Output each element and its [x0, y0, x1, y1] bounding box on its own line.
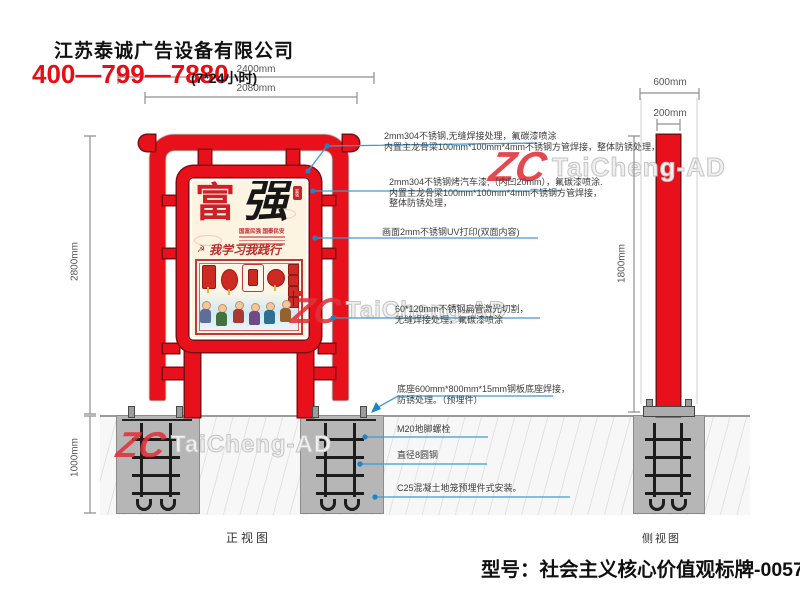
- frame-cap-left-end: [139, 135, 155, 151]
- dim-label-200: 200mm: [650, 108, 690, 119]
- banner-icon: [288, 264, 299, 275]
- rebar-cage: [645, 423, 691, 507]
- crowd-figure: [249, 303, 261, 329]
- leader-arrowhead: [371, 402, 381, 413]
- anchor-bolt: [128, 406, 135, 418]
- lantern-tassel: [207, 287, 209, 293]
- poster-artwork: 富 强 富强 国富民强 国泰民安 ☭ 我学习我践行: [192, 181, 306, 337]
- annotation-line: 2mm304不锈钢,无缝焊接处理，氟碳漆喷涂: [384, 131, 660, 142]
- lattice-bar: [319, 249, 335, 258]
- lantern-icon: [221, 269, 238, 291]
- crowd-figure: [233, 301, 245, 327]
- poster-seal: 富强: [293, 186, 302, 200]
- lantern-tassel: [274, 285, 276, 291]
- lattice-bar: [319, 196, 335, 205]
- front-view-label: 正视图: [226, 529, 271, 546]
- baseplate-line: [306, 419, 376, 421]
- annotation-line: 内置主龙骨梁100mm*100mm*4mm不锈钢方管焊接，整体防锈处理，: [384, 142, 660, 153]
- poster-character-qiang: 强: [242, 181, 288, 224]
- rebar-cage: [132, 423, 180, 507]
- side-baseplate: [643, 406, 695, 417]
- annotation-panel-paint: 2mm304不锈钢烤汽车漆,（内凹20mm），氟碳漆喷涂. 内置主龙骨梁100m…: [389, 177, 603, 209]
- poster-illustration: [195, 259, 303, 335]
- crowd-figure: [264, 302, 276, 328]
- annotation-concrete: C25混凝土地笼预埋件式安装。: [397, 483, 522, 494]
- fine-print-line: [239, 236, 285, 238]
- dim-label-2800: 2800mm: [70, 236, 81, 288]
- annotation-baseplate: 底座600mm*800mm*15mm钢板底座焊接， 防锈处理。（预埋件）: [397, 384, 570, 405]
- crowd-figure: [216, 304, 228, 330]
- lantern-core: [248, 269, 258, 286]
- rebar-cage: [316, 423, 364, 507]
- annotation-uv-print: 画面2mm不锈钢UV打印(双面内容): [382, 227, 520, 238]
- side-view-label: 侧视图: [642, 530, 681, 546]
- banner-icon: [288, 275, 299, 286]
- frame-cap-right-end: [343, 135, 359, 151]
- annotation-anchor-bolt: M20地脚螺栓: [397, 424, 451, 435]
- anchor-bolt: [312, 406, 319, 418]
- lattice-bar: [319, 344, 335, 353]
- annotation-rebar: 直径8圆钢: [397, 450, 438, 461]
- annotation-line: 防锈处理。（预埋件）: [397, 395, 570, 406]
- anchor-bolt: [360, 406, 367, 418]
- dim-line-200: [657, 119, 680, 131]
- annotation-line: 2mm304不锈钢烤汽车漆,（内凹20mm），氟碳漆喷涂.: [389, 177, 603, 188]
- dim-line-1000: [84, 416, 96, 513]
- dim-label-2400: 2400mm: [228, 64, 284, 75]
- front-leg-left: [185, 348, 200, 417]
- annotation-line: 整体防锈处理，: [389, 198, 603, 209]
- annotation-line: 底座600mm*800mm*15mm钢板底座焊接，: [397, 384, 570, 395]
- poster-calligraphy-slogan: 我学习我践行: [209, 241, 281, 258]
- party-emblem-icon: ☭: [197, 244, 205, 255]
- annotation-line: C25混凝土地笼预埋件式安装。: [397, 483, 522, 494]
- crowd-figure: [200, 301, 212, 327]
- dim-label-2080: 2080mm: [228, 83, 284, 94]
- dim-label-1000: 1000mm: [70, 432, 81, 484]
- red-flag-icon: [294, 291, 303, 296]
- annotation-line: 直径8圆钢: [397, 450, 438, 461]
- lantern-icon: [202, 265, 216, 289]
- dim-line-600: [640, 88, 699, 100]
- annotation-line: 画面2mm不锈钢UV打印(双面内容): [382, 227, 520, 238]
- dim-line-2800: [84, 136, 96, 414]
- poster-subtitle: 国富民强 国泰民安: [239, 227, 285, 235]
- model-number: 型号：社会主义核心价值观标牌-0057: [481, 553, 800, 582]
- crowd-figure: [280, 300, 292, 326]
- poster-character-fu: 富: [195, 183, 235, 223]
- dim-line-1800: [628, 136, 640, 412]
- annotation-line: 60*120mm不锈钢扁管激光切割，: [395, 304, 529, 315]
- dim-label-1800: 1800mm: [617, 238, 628, 290]
- lantern-tassel: [228, 289, 230, 295]
- lantern-icon: [267, 269, 285, 287]
- annotation-line: M20地脚螺栓: [397, 424, 451, 435]
- annotation-steel-frame: 2mm304不锈钢,无缝焊接处理，氟碳漆喷涂 内置主龙骨梁100mm*100mm…: [384, 131, 660, 152]
- annotation-line: 无缝焊接处理，氟碳漆喷涂: [395, 315, 529, 326]
- side-pole: [657, 135, 680, 416]
- baseplate-line: [122, 419, 192, 421]
- anchor-bolt: [176, 406, 183, 418]
- annotation-flat-tube: 60*120mm不锈钢扁管激光切割， 无缝焊接处理，氟碳漆喷涂: [395, 304, 529, 325]
- annotation-line: 内置主龙骨梁100mm*100mm*4mm不锈钢方管焊接，: [389, 188, 603, 199]
- dim-label-600: 600mm: [645, 77, 695, 88]
- lattice-bar: [163, 344, 179, 353]
- front-leg-right: [298, 348, 313, 417]
